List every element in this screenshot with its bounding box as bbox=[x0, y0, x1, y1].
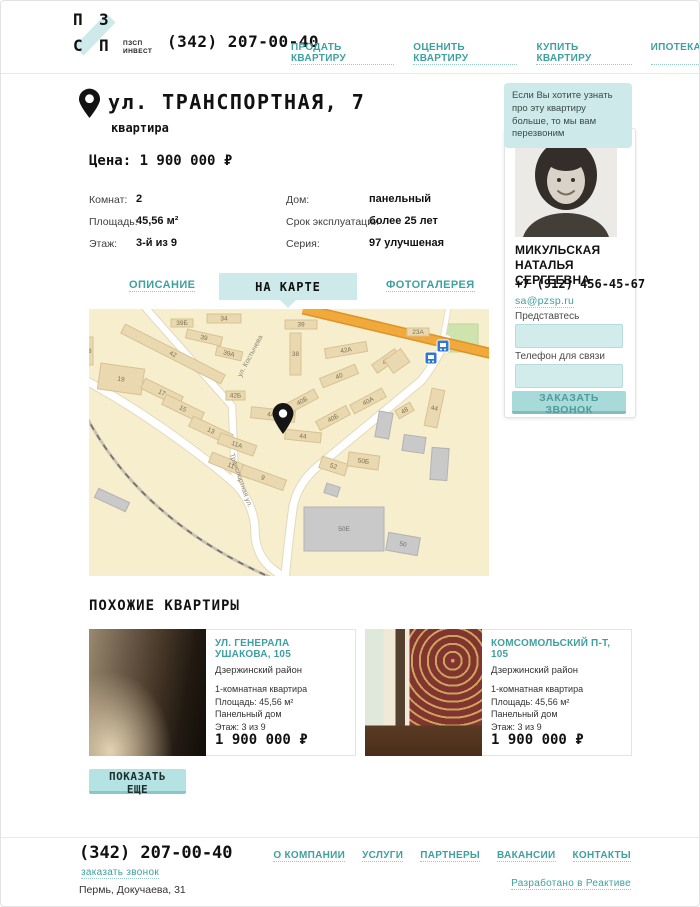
similar-card-details: 1-комнатная квартира Площадь: 45,56 м² П… bbox=[215, 683, 346, 733]
similar-card-details: 1-комнатная квартира Площадь: 45,56 м² П… bbox=[491, 683, 622, 733]
nav-buy-apartment[interactable]: КУПИТЬ КВАРТИРУ bbox=[536, 42, 631, 65]
spec-house-label: Дом: bbox=[286, 194, 309, 206]
phone-field-label: Телефон для связи bbox=[515, 351, 605, 362]
svg-text:19: 19 bbox=[117, 376, 126, 384]
agent-photo bbox=[515, 137, 617, 237]
logo-subtext-line1: ПЗСП bbox=[123, 40, 152, 48]
page: П З С П ПЗСП ИНВЕСТ (342) 207-00-40 ПРОД… bbox=[0, 0, 700, 907]
footer-address: Пермь, Докучаева, 31 bbox=[79, 884, 186, 896]
detail-line: Площадь: 45,56 м² bbox=[215, 696, 346, 709]
show-more-button[interactable]: ПОКАЗАТЬ ЕЩЕ bbox=[89, 769, 186, 794]
name-field-label: Представтесь bbox=[515, 311, 579, 322]
nav-sell-apartment[interactable]: ПРОДАТЬ КВАРТИРУ bbox=[291, 42, 394, 65]
similar-card-info: КОМСОМОЛЬСКИЙ П-Т, 105 Дзержинский район… bbox=[482, 629, 632, 756]
detail-line: Панельный дом bbox=[491, 708, 622, 721]
map-building: 23А bbox=[407, 328, 429, 336]
logo-letter: П bbox=[73, 10, 83, 29]
pzsp-logo[interactable]: П З С П bbox=[71, 10, 119, 60]
bubble-tail bbox=[508, 126, 517, 135]
tab-description[interactable]: ОПИСАНИЕ bbox=[129, 279, 195, 292]
map-building: 38 bbox=[290, 333, 301, 375]
map-building bbox=[402, 435, 426, 454]
map-building: 19 bbox=[97, 363, 144, 395]
map-building: 39Б bbox=[171, 319, 193, 327]
header: П З С П ПЗСП ИНВЕСТ (342) 207-00-40 ПРОД… bbox=[1, 1, 700, 74]
footer-divider bbox=[1, 837, 700, 838]
tab-photogallery[interactable]: ФОТОГАЛЕРЕЯ bbox=[386, 279, 475, 292]
map-building: 42Б bbox=[226, 391, 245, 400]
spec-rooms-label: Комнат: bbox=[89, 194, 127, 206]
nav-estimate-apartment[interactable]: ОЦЕНИТЬ КВАРТИРУ bbox=[413, 42, 517, 65]
svg-text:23А: 23А bbox=[412, 329, 424, 336]
tab-active-pointer bbox=[280, 300, 296, 308]
spec-series-value: 97 улучшеная bbox=[369, 237, 444, 249]
similar-card-price: 1 900 000 ₽ bbox=[215, 732, 308, 748]
logo-letter: З bbox=[99, 10, 109, 29]
spec-age-value: более 25 лет bbox=[369, 215, 438, 227]
detail-line: Площадь: 45,56 м² bbox=[491, 696, 622, 709]
agent-email-link[interactable]: sa@pzsp.ru bbox=[515, 295, 574, 308]
svg-text:34: 34 bbox=[220, 316, 228, 323]
footer-nav-contacts[interactable]: КОНТАКТЫ bbox=[573, 850, 631, 862]
footer-callback-link[interactable]: заказать звонок bbox=[81, 867, 159, 879]
tab-map-active[interactable]: НА КАРТЕ bbox=[219, 273, 357, 300]
phone-input[interactable] bbox=[515, 364, 623, 388]
page-title: ул. ТРАНСПОРТНАЯ, 7 bbox=[108, 90, 365, 114]
similar-card-ushakova[interactable]: УЛ. ГЕНЕРАЛА УШАКОВА, 105 Дзержинский ра… bbox=[89, 629, 356, 756]
callback-hint-bubble: Если Вы хотите узнать про эту квартиру б… bbox=[504, 83, 632, 148]
similar-apartments-heading: ПОХОЖИЕ КВАРТИРЫ bbox=[89, 598, 240, 614]
spec-house-value: панельный bbox=[369, 193, 431, 205]
spec-series-label: Серия: bbox=[286, 238, 320, 250]
logo-subtext: ПЗСП ИНВЕСТ bbox=[123, 40, 152, 56]
similar-card-district: Дзержинский район bbox=[215, 665, 346, 676]
map-building bbox=[430, 447, 449, 480]
detail-line: 1-комнатная квартира bbox=[491, 683, 622, 696]
map-widget[interactable]: 39Б343939А4219171542Б1311А119393842А4040… bbox=[89, 309, 489, 576]
spec-area-value: 45,56 м² bbox=[136, 215, 178, 227]
footer-credit-link[interactable]: Разработано в Реактиве bbox=[511, 878, 631, 890]
spec-rooms-value: 2 bbox=[136, 193, 142, 205]
main-nav: ПРОДАТЬ КВАРТИРУ ОЦЕНИТЬ КВАРТИРУ КУПИТЬ… bbox=[291, 42, 700, 65]
svg-text:38: 38 bbox=[292, 351, 300, 358]
logo-letter: П bbox=[99, 36, 109, 55]
order-call-button[interactable]: ЗАКАЗАТЬ ЗВОНОК bbox=[512, 391, 626, 414]
price-line: Цена: 1 900 000 ₽ bbox=[89, 153, 232, 169]
spec-area-label: Площадь: bbox=[89, 216, 138, 228]
similar-card-title[interactable]: УЛ. ГЕНЕРАЛА УШАКОВА, 105 bbox=[215, 638, 346, 660]
map-building: 39 bbox=[285, 320, 317, 329]
logo-letter: С bbox=[73, 36, 83, 55]
name-input[interactable] bbox=[515, 324, 623, 348]
svg-text:39Б: 39Б bbox=[176, 320, 188, 327]
nav-mortgage[interactable]: ИПОТЕКА bbox=[651, 42, 700, 65]
similar-card-price: 1 900 000 ₽ bbox=[491, 732, 584, 748]
svg-text:44: 44 bbox=[299, 433, 307, 441]
svg-text:42Б: 42Б bbox=[230, 393, 242, 400]
footer-nav-partners[interactable]: ПАРТНЕРЫ bbox=[420, 850, 480, 862]
similar-card-district: Дзержинский район bbox=[491, 665, 622, 676]
footer-nav-vacancies[interactable]: ВАКАНСИИ bbox=[497, 850, 556, 862]
detail-line: Панельный дом bbox=[215, 708, 346, 721]
location-pin-icon bbox=[78, 88, 101, 124]
similar-card-komsomolsky[interactable]: КОМСОМОЛЬСКИЙ П-Т, 105 Дзержинский район… bbox=[365, 629, 632, 756]
svg-text:39: 39 bbox=[297, 322, 305, 329]
apartment-photo bbox=[89, 629, 206, 756]
similar-card-info: УЛ. ГЕНЕРАЛА УШАКОВА, 105 Дзержинский ра… bbox=[206, 629, 356, 756]
detail-line: 1-комнатная квартира bbox=[215, 683, 346, 696]
agent-phone: +7 (912) 456-45-67 bbox=[515, 277, 645, 291]
spec-floor-value: 3-й из 9 bbox=[136, 237, 177, 249]
svg-text:50Е: 50Е bbox=[338, 526, 350, 533]
footer-nav-about[interactable]: О КОМПАНИИ bbox=[273, 850, 345, 862]
map-building: 34 bbox=[207, 314, 241, 323]
map-building: 50Е bbox=[304, 507, 384, 551]
apartment-photo bbox=[365, 629, 482, 756]
logo-subtext-line2: ИНВЕСТ bbox=[123, 48, 152, 56]
map-building: 38 bbox=[89, 337, 93, 365]
spec-age-label: Срок эксплуатации bbox=[286, 216, 379, 228]
svg-text:38: 38 bbox=[89, 348, 92, 355]
listing-type-label: квартира bbox=[111, 121, 169, 135]
footer-nav: О КОМПАНИИ УСЛУГИ ПАРТНЕРЫ ВАКАНСИИ КОНТ… bbox=[273, 850, 631, 862]
footer-nav-services[interactable]: УСЛУГИ bbox=[362, 850, 403, 862]
spec-floor-label: Этаж: bbox=[89, 238, 117, 250]
similar-card-title[interactable]: КОМСОМОЛЬСКИЙ П-Т, 105 bbox=[491, 638, 622, 660]
footer-phone: (342) 207-00-40 bbox=[79, 843, 233, 863]
